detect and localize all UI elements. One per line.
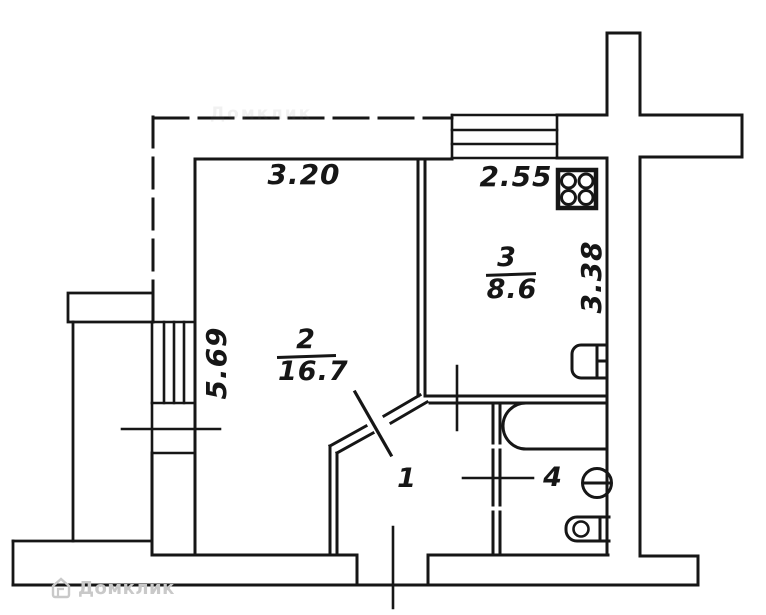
dimension-room3-width: 2.55 xyxy=(470,162,562,192)
stove-4-burner-icon xyxy=(558,170,596,208)
floor-plan-drawing xyxy=(0,0,766,615)
room4-number: 4 xyxy=(538,464,568,492)
floor-plan: 3.20 2.55 5.69 3.38 1 2 16.7 3 8.6 4 Дом… xyxy=(0,0,766,615)
dimension-room2-depth: 5.69 xyxy=(202,325,232,401)
wash-basin-icon xyxy=(566,517,609,541)
brand-house-icon xyxy=(50,576,72,600)
room2-window xyxy=(152,322,195,403)
dimension-room3-depth: 3.38 xyxy=(577,239,607,315)
room3-area: 8.6 xyxy=(486,276,538,304)
interior-walls xyxy=(330,159,607,555)
bathtub-icon xyxy=(503,403,607,449)
dimension-room2-width: 3.20 xyxy=(258,160,350,190)
room1-number: 1 xyxy=(392,465,422,493)
brand-watermark-text: Домклик xyxy=(78,578,175,599)
balcony-door xyxy=(122,403,220,453)
kitchen-window xyxy=(452,115,557,158)
faint-watermark: Домклик xyxy=(210,104,312,124)
room2-area: 16.7 xyxy=(278,358,340,386)
room2-number: 2 xyxy=(291,326,321,354)
kitchen-sink-icon xyxy=(572,345,607,378)
brand-watermark: Домклик xyxy=(50,576,175,600)
balcony xyxy=(13,293,153,585)
toilet-icon xyxy=(583,469,612,498)
room3-number: 3 xyxy=(492,244,522,272)
room2-door-leaf xyxy=(355,392,391,455)
wall-column-cross xyxy=(557,33,742,158)
